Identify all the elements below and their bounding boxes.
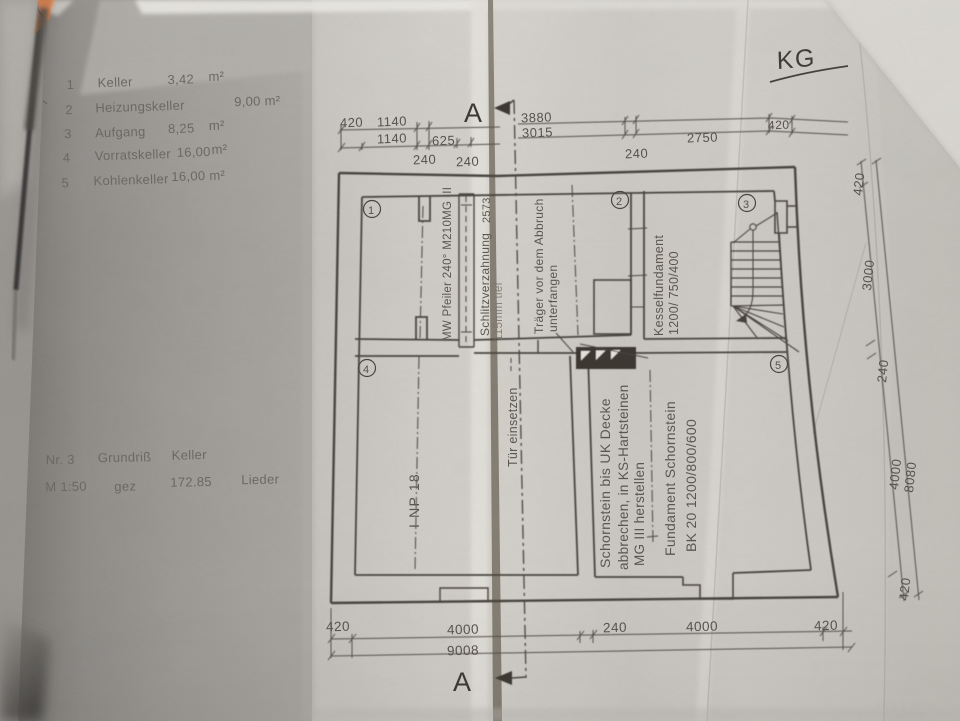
- svg-text:Nr. 3: Nr. 3: [46, 452, 75, 468]
- svg-text:4000: 4000: [447, 622, 479, 638]
- svg-text:I NP 18: I NP 18: [406, 473, 422, 528]
- svg-text:16,00 m²: 16,00 m²: [171, 167, 225, 184]
- svg-text:420: 420: [814, 618, 838, 634]
- svg-text:Schornstein bis UK Decke: Schornstein bis UK Decke: [597, 398, 613, 568]
- svg-text:240: 240: [625, 146, 649, 162]
- svg-text:115mm tief: 115mm tief: [493, 281, 505, 341]
- svg-text:240: 240: [874, 359, 891, 384]
- svg-text:2573: 2573: [481, 197, 493, 223]
- svg-text:MW Pfeiler 240° M210MG III: MW Pfeiler 240° M210MG III: [442, 187, 454, 341]
- svg-text:Kesselfundament: Kesselfundament: [652, 235, 666, 336]
- svg-text:1140: 1140: [377, 130, 407, 146]
- svg-text:240: 240: [413, 152, 437, 168]
- svg-text:5: 5: [61, 175, 69, 190]
- svg-text:Grundriß: Grundriß: [98, 449, 152, 465]
- svg-text:172.85: 172.85: [170, 474, 212, 490]
- svg-text:Keller: Keller: [97, 74, 133, 90]
- svg-text:Lieder: Lieder: [241, 472, 280, 488]
- svg-text:3: 3: [64, 126, 72, 141]
- svg-text:unterfangen: unterfangen: [546, 265, 560, 332]
- svg-text:2: 2: [65, 102, 73, 117]
- svg-text:Träger vor dem Abbruch: Träger vor dem Abbruch: [532, 198, 546, 334]
- svg-text:KG: KG: [776, 44, 816, 75]
- svg-text:Keller: Keller: [172, 447, 208, 463]
- svg-text:BK 20 1200/800/600: BK 20 1200/800/600: [683, 419, 699, 552]
- svg-text:16,00: 16,00: [176, 144, 210, 160]
- svg-text:4: 4: [63, 150, 71, 165]
- svg-text:420: 420: [768, 118, 790, 133]
- svg-text:abbrechen, in KS-Hartsteinen: abbrechen, in KS-Hartsteinen: [616, 384, 631, 570]
- svg-text:4: 4: [363, 364, 369, 376]
- svg-text:240: 240: [603, 620, 627, 636]
- svg-text:240: 240: [456, 154, 480, 170]
- svg-text:9,00 m²: 9,00 m²: [234, 93, 281, 109]
- svg-text:A: A: [464, 98, 482, 128]
- svg-text:3880: 3880: [521, 109, 552, 125]
- svg-text:1: 1: [368, 205, 374, 217]
- svg-text:420: 420: [850, 172, 867, 197]
- svg-text:Vorratskeller: Vorratskeller: [95, 146, 172, 163]
- svg-text:625: 625: [432, 133, 456, 149]
- svg-text:Schlitzverzahnung: Schlitzverzahnung: [478, 233, 492, 336]
- svg-text:8,25: 8,25: [168, 120, 195, 136]
- svg-text:Heizungskeller: Heizungskeller: [95, 98, 185, 116]
- svg-text:3: 3: [743, 199, 749, 211]
- svg-text:2750: 2750: [687, 129, 718, 145]
- svg-text:1140: 1140: [377, 113, 407, 129]
- svg-text:A: A: [453, 667, 471, 697]
- svg-text:gez: gez: [114, 479, 136, 494]
- svg-text:Kohlenkeller: Kohlenkeller: [93, 171, 169, 188]
- svg-text:MG III herstellen: MG III herstellen: [632, 462, 647, 566]
- svg-text:4000: 4000: [686, 619, 718, 635]
- svg-text:5: 5: [775, 360, 781, 372]
- svg-text:m²: m²: [209, 117, 226, 132]
- svg-text:1: 1: [66, 77, 74, 92]
- svg-text:3015: 3015: [522, 124, 553, 140]
- svg-text:1200/ 750/400: 1200/ 750/400: [667, 251, 681, 335]
- svg-text:Aufgang: Aufgang: [95, 124, 146, 140]
- svg-text:9008: 9008: [447, 643, 479, 659]
- svg-text:m²: m²: [211, 141, 228, 156]
- svg-text:420: 420: [326, 619, 350, 635]
- svg-text:Fundament Schornstein: Fundament Schornstein: [662, 401, 678, 556]
- svg-text:420: 420: [896, 577, 913, 602]
- svg-text:2: 2: [616, 196, 622, 208]
- svg-text:3,42: 3,42: [167, 71, 194, 87]
- svg-text:m²: m²: [208, 68, 225, 83]
- svg-text:M 1:50: M 1:50: [45, 479, 87, 495]
- svg-text:420: 420: [340, 115, 364, 131]
- svg-text:Tür einsetzen: Tür einsetzen: [506, 387, 520, 467]
